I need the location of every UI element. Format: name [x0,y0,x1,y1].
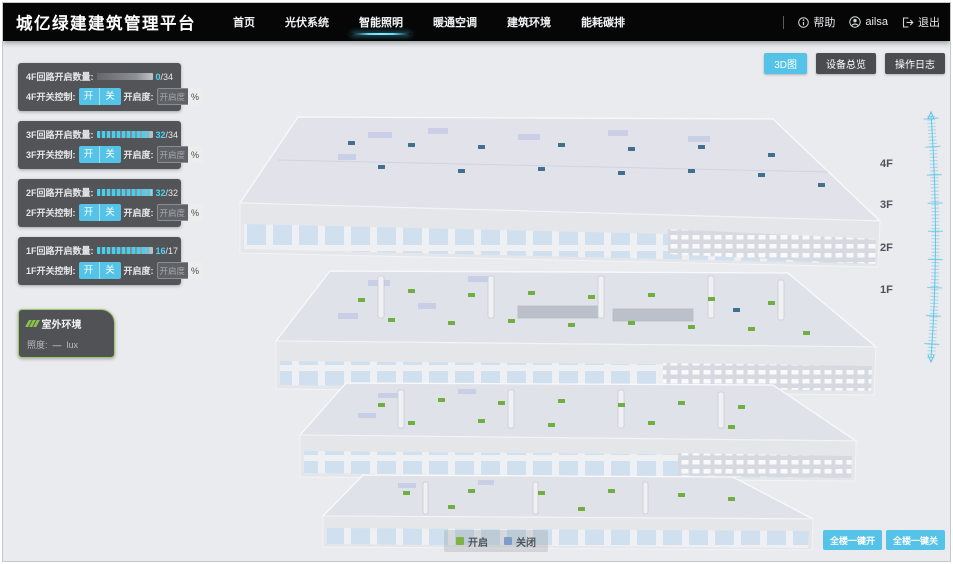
light-marker-on[interactable] [508,319,515,323]
info-icon [798,17,809,28]
switch-group: 开 关 [79,88,121,105]
light-marker-on[interactable] [678,493,685,497]
legend-on-label: 开启 [468,534,488,549]
light-marker-on[interactable] [803,331,810,335]
light-marker-on[interactable] [468,489,475,493]
switch-group: 开 关 [79,262,121,279]
light-marker-on[interactable] [438,398,445,402]
light-marker-off[interactable] [758,173,765,177]
light-marker-on[interactable] [528,291,535,295]
floor-2f-dim-percent-button[interactable]: % [188,204,203,221]
floor-1f-dim-percent-button[interactable]: % [188,262,203,279]
light-marker-on[interactable] [548,423,555,427]
top-nav: 城亿绿建建筑管理平台 首页 光伏系统 智能照明 暖通空调 建筑环境 能耗碳排 帮… [3,3,950,41]
light-marker-on[interactable] [448,321,455,325]
floor-tag-2f[interactable]: 2F [880,242,893,254]
light-marker-off[interactable] [558,143,565,147]
light-marker-on[interactable] [688,325,695,329]
floor-control-sidebar: 4F回路开启数量: 0/34 4F开关控制: 开 关 开启度: % 3F回路开启… [18,63,181,358]
help-label: 帮助 [813,14,835,30]
floor-2f-dim-input[interactable] [157,204,188,221]
light-marker-on[interactable] [618,403,625,407]
floor-1f-off-button[interactable]: 关 [100,262,121,279]
floor-ruler-slider[interactable] [906,106,944,368]
light-marker-off[interactable] [348,141,355,145]
floor-4f-off-button[interactable]: 关 [100,88,121,105]
circuit-progress-bar [97,131,153,138]
user-menu[interactable]: ailsa [849,16,888,28]
floor-3f-on-button[interactable]: 开 [79,146,100,163]
dim-group: % [157,88,203,105]
light-marker-on[interactable] [748,327,755,331]
legend-on-swatch [456,537,464,545]
light-marker-on[interactable] [558,399,565,403]
light-marker-on[interactable] [378,403,385,407]
username-label: ailsa [865,16,888,28]
floor-panel-4f: 4F回路开启数量: 0/34 4F开关控制: 开 关 开启度: % [18,63,181,111]
switch-control-label: 2F开关控制: [26,206,76,219]
light-marker-on[interactable] [538,491,545,495]
light-marker-off[interactable] [538,167,545,171]
logout-link[interactable]: 退出 [902,14,940,30]
app-window: 城亿绿建建筑管理平台 首页 光伏系统 智能照明 暖通空调 建筑环境 能耗碳排 帮… [0,0,953,564]
logout-icon [902,17,914,28]
light-marker-on[interactable] [578,507,585,511]
switch-group: 开 关 [79,204,121,221]
legend-off-label: 关闭 [516,534,536,549]
dim-group: % [157,204,203,221]
light-state-legend: 开启 关闭 [444,530,548,552]
light-marker-off[interactable] [628,147,635,151]
floor-4f-dim-input[interactable] [157,88,188,105]
switch-control-label: 4F开关控制: [26,90,76,103]
circuit-progress-bar [97,247,153,254]
outdoor-env-title: 室外环境 [42,316,82,331]
floor-3f-off-button[interactable]: 关 [100,146,121,163]
light-marker-off[interactable] [458,169,465,173]
floor-1f-on-button[interactable]: 开 [79,262,100,279]
light-marker-off[interactable] [618,171,625,175]
dim-group: % [157,146,203,163]
bulk-actions: 全楼一键开 全楼一键关 [823,530,945,550]
dim-group: % [157,262,203,279]
logout-label: 退出 [918,14,940,30]
floor-panel-3f: 3F回路开启数量: 32/34 3F开关控制: 开 关 开启度: % [18,121,181,169]
floor-panel-2f: 2F回路开启数量: 32/32 2F开关控制: 开 关 开启度: % [18,179,181,227]
floor-3f-dim-percent-button[interactable]: % [188,146,203,163]
light-marker-on[interactable] [678,401,685,405]
floor-2f-off-button[interactable]: 关 [100,204,121,221]
light-marker-on[interactable] [498,401,505,405]
floor-3f-dim-input[interactable] [157,146,188,163]
floor-4f-on-button[interactable]: 开 [79,88,100,105]
light-marker-on[interactable] [358,298,365,302]
light-marker-on[interactable] [408,289,415,293]
legend-item-off: 关闭 [504,534,536,549]
operation-log-button[interactable]: 操作日志 [885,53,945,74]
building-floor-2f[interactable] [300,383,856,481]
outdoor-env-icon [27,320,38,327]
legend-off-swatch [504,537,512,545]
dim-label: 开启度: [124,148,154,161]
switch-control-label: 1F开关控制: [26,264,76,277]
light-marker-on[interactable] [728,497,735,501]
light-marker-off[interactable] [768,153,775,157]
legend-item-on: 开启 [456,534,488,549]
view-switch: 3D图 设备总览 操作日志 [764,53,945,74]
nav-item-pv-system[interactable]: 光伏系统 [270,3,344,41]
circuit-count-value: 0/34 [156,72,174,82]
floor-tag-3f[interactable]: 3F [880,199,893,211]
light-marker-off[interactable] [698,145,705,149]
circuit-count-label: 4F回路开启数量: [26,70,94,83]
app-frame: 城亿绿建建筑管理平台 首页 光伏系统 智能照明 暖通空调 建筑环境 能耗碳排 帮… [2,2,951,562]
light-marker-on[interactable] [628,321,635,325]
building-floor-4f[interactable] [240,117,880,267]
light-marker-on[interactable] [478,419,485,423]
light-marker-on[interactable] [738,405,745,409]
light-marker-on[interactable] [568,323,575,327]
light-marker-on[interactable] [403,491,410,495]
light-marker-on[interactable] [648,421,655,425]
illuminance-unit: lux [67,340,79,350]
user-icon [849,16,861,28]
illuminance-value: — [53,340,62,350]
app-title: 城亿绿建建筑管理平台 [16,10,196,34]
light-marker-off[interactable] [408,143,415,147]
light-marker-off[interactable] [378,165,385,169]
light-marker-on[interactable] [468,293,475,297]
switch-control-label: 3F开关控制: [26,148,76,161]
light-marker-on[interactable] [608,489,615,493]
nav-item-energy-carbon[interactable]: 能耗碳排 [566,3,640,41]
help-link[interactable]: 帮助 [798,14,835,30]
building-3d-view[interactable] [218,98,898,553]
switch-group: 开 关 [79,146,121,163]
outdoor-env-panel: 室外环境 照度: — lux [18,309,115,358]
light-marker-on[interactable] [408,421,415,425]
dim-label: 开启度: [124,90,154,103]
circuit-count-label: 1F回路开启数量: [26,244,94,257]
illuminance-label: 照度: [27,338,48,351]
nav-item-hvac[interactable]: 暖通空调 [418,3,492,41]
nav-item-building-env[interactable]: 建筑环境 [492,3,566,41]
circuit-count-label: 3F回路开启数量: [26,128,94,141]
view-3d-button[interactable]: 3D图 [764,53,807,74]
light-marker-on[interactable] [728,425,735,429]
circuit-count-value: 32/34 [156,130,179,140]
light-marker-on[interactable] [388,318,395,322]
dim-label: 开启度: [124,206,154,219]
floor-2f-on-button[interactable]: 开 [79,204,100,221]
nav-divider [783,16,784,29]
nav-item-smart-lighting[interactable]: 智能照明 [344,3,418,41]
circuit-count-value: 32/32 [156,188,179,198]
light-marker-off[interactable] [478,145,485,149]
light-marker-off[interactable] [818,183,825,187]
circuit-count-value: 16/17 [156,246,179,256]
building-floor-1f[interactable] [323,475,813,550]
floor-tag-4f[interactable]: 4F [880,158,893,170]
floor-4f-dim-percent-button[interactable]: % [188,88,203,105]
light-marker-off[interactable] [688,169,695,173]
floor-panel-1f: 1F回路开启数量: 16/17 1F开关控制: 开 关 开启度: % [18,237,181,285]
all-floors-off-button[interactable]: 全楼一键关 [886,530,945,550]
circuit-count-label: 2F回路开启数量: [26,186,94,199]
nav-item-home[interactable]: 首页 [218,3,270,41]
main-nav: 首页 光伏系统 智能照明 暖通空调 建筑环境 能耗碳排 [218,3,640,41]
device-overview-button[interactable]: 设备总览 [816,53,876,74]
light-marker-on[interactable] [708,297,715,301]
light-marker-off[interactable] [733,308,740,312]
floor-tag-1f[interactable]: 1F [880,284,893,296]
circuit-progress-bar [97,73,153,80]
dim-label: 开启度: [124,264,154,277]
nav-right: 帮助 ailsa 退出 [783,14,940,30]
building-floor-3f[interactable] [276,271,876,395]
circuit-progress-bar [97,189,153,196]
light-marker-on[interactable] [768,301,775,305]
light-marker-on[interactable] [588,295,595,299]
floor-1f-dim-input[interactable] [157,262,188,279]
all-floors-on-button[interactable]: 全楼一键开 [823,530,882,550]
light-marker-on[interactable] [448,505,455,509]
light-marker-on[interactable] [648,293,655,297]
